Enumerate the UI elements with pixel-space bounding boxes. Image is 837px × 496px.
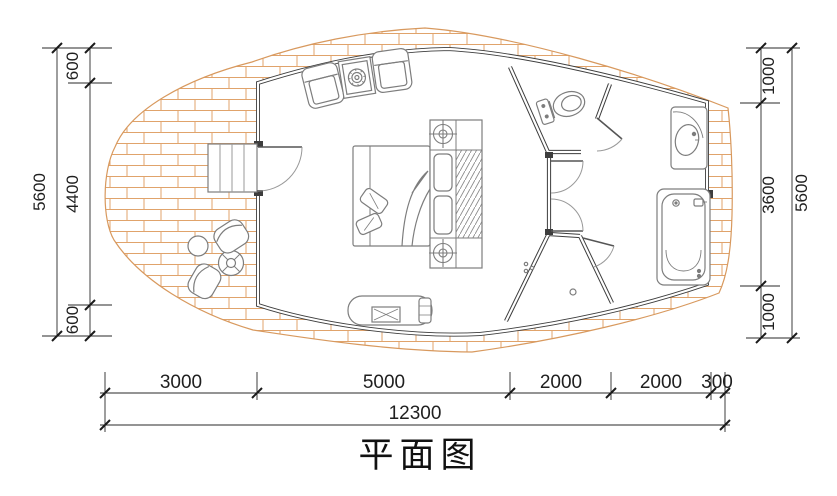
dim-left-4400: 4400 — [63, 175, 82, 213]
patio-table — [188, 236, 208, 256]
wardrobe-hanging — [457, 151, 482, 238]
floor-plan-canvas: 600 4400 600 5600 1000 3600 1000 5600 30… — [0, 0, 837, 496]
sink-vanity — [671, 107, 707, 169]
side-table — [338, 57, 375, 99]
dim-bottom-300: 300 — [701, 372, 733, 393]
dim-right-3600: 3600 — [759, 176, 778, 214]
console-cushion — [434, 154, 452, 191]
patio-firepit-table — [219, 251, 244, 276]
dim-left-total: 5600 — [30, 173, 49, 211]
tv-bench — [348, 296, 432, 325]
console-cushion — [434, 196, 452, 234]
dim-left-600-top: 600 — [63, 52, 82, 80]
dim-right-1000-bot: 1000 — [759, 293, 778, 331]
dim-left-600-bot: 600 — [63, 306, 82, 334]
dim-bottom-total: 12300 — [389, 403, 442, 424]
dim-bottom-2000-b: 2000 — [640, 372, 682, 393]
bedside-console — [429, 120, 482, 268]
entry-steps — [208, 144, 257, 192]
dim-bottom-3000: 3000 — [160, 372, 202, 393]
armchair-right — [371, 48, 412, 94]
wall-jamb — [545, 229, 553, 235]
bathtub — [657, 189, 710, 285]
floor-plan-drawing: 600 4400 600 5600 1000 3600 1000 5600 30… — [0, 0, 837, 496]
dim-bottom-5000: 5000 — [363, 372, 405, 393]
wall-jamb — [545, 152, 553, 158]
drawing-title: 平面图 — [358, 436, 481, 475]
dim-right-total: 5600 — [792, 174, 811, 212]
dim-bottom-2000-a: 2000 — [540, 372, 582, 393]
dim-right-1000-top: 1000 — [759, 57, 778, 95]
double-bed — [353, 146, 430, 246]
